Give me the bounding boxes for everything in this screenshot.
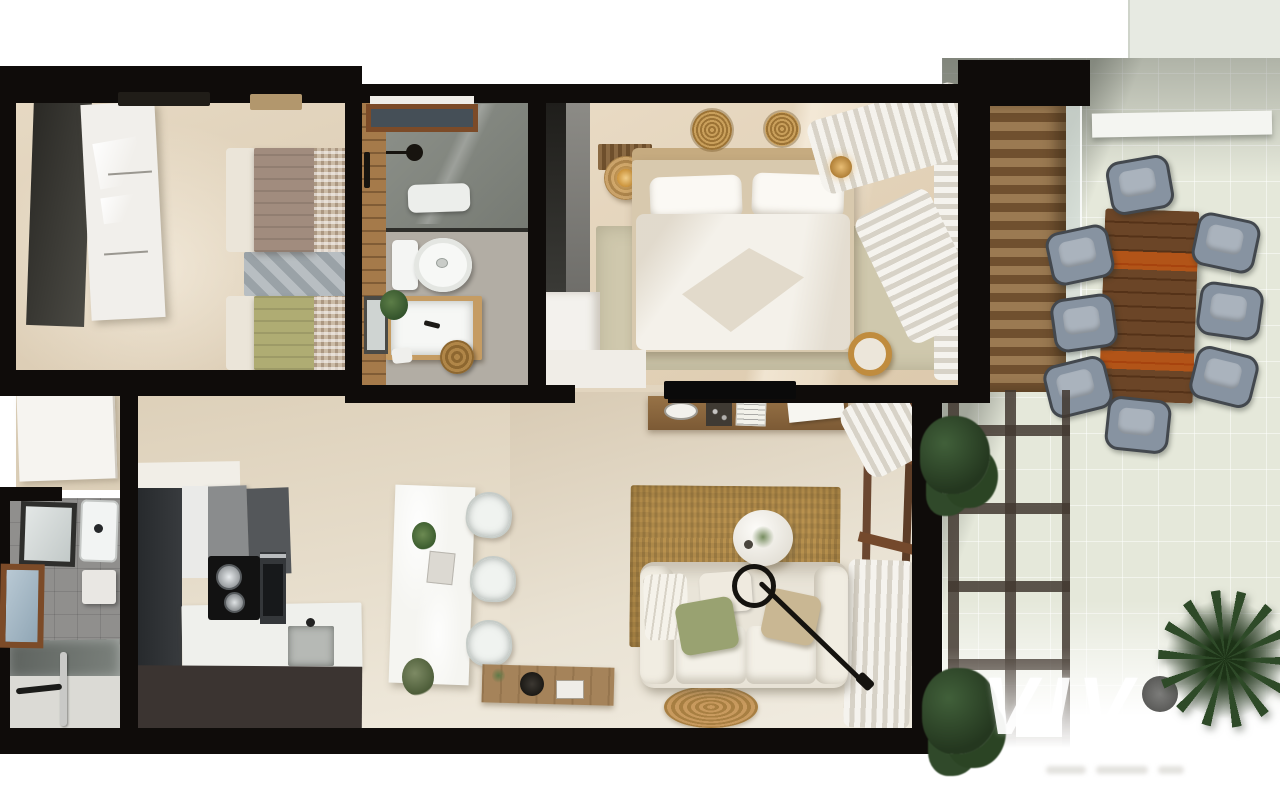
watermark: VIV [982,660,1222,756]
watermark-subtext-blur-1 [1046,766,1086,774]
kitchen-faucet [306,618,315,627]
bathroom2-window [0,564,45,649]
desk-notepad [736,401,767,426]
wall-mid-left [0,370,350,396]
wall-master-terrace [958,60,990,392]
bathroom1-window [366,104,478,132]
ceiling-vent [118,92,210,106]
wall-medallion-1 [692,110,732,150]
outdoor-chair-top [1104,153,1176,217]
wall-shelf [250,94,302,110]
table-tray [426,551,455,586]
wall-bottom [0,728,950,754]
kitchen-front-panel [136,665,362,731]
toilet-flush-button [436,258,448,268]
bedroom2-gray-rug [244,252,346,296]
master-dresser-return [546,350,646,388]
wardrobe-reflection [92,137,143,190]
master-pouf [848,332,892,376]
sofa-pillow-green [674,595,740,656]
jute-basket [440,340,474,374]
wall-mid-center [345,385,575,403]
watermark-subtext-blur-3 [1158,766,1184,774]
wall-bathroom1-master [528,84,546,403]
floor-plan-scene: VIV [0,0,1280,800]
bathroom2-wall-cabinet [82,570,116,604]
wall-hall-bathroom2 [120,390,138,730]
kitchen-floor-plant [402,658,434,696]
shower-arm [386,151,410,154]
outdoor-chair-bottom [1103,395,1172,455]
living-curtain-right [843,559,915,729]
wall-medallion-2 [765,112,799,146]
table-plant [412,522,436,550]
outdoor-chair-right-2 [1195,280,1266,342]
master-wardrobe-gray [566,103,590,293]
console-speaker [520,672,544,696]
arc-lamp-ring [732,564,776,608]
neighbor-roof-panel [1128,0,1280,64]
wardrobe-reflection-2 [100,194,137,224]
wall-left-upper [0,66,16,396]
pendant-lamp [830,156,852,178]
towel-rail [364,152,370,188]
bathroom2-faucet [94,524,103,533]
desk-photo-frames [706,402,732,426]
kitchen-tall-white-unit [182,486,208,578]
shower-tray [408,183,471,213]
bath-towel [391,347,412,364]
coffee-table-bowl [744,540,753,549]
desk-lamp [664,402,698,420]
coffee-table-plant [752,526,774,548]
bed2-quilt [254,296,316,370]
pot-small [224,592,245,613]
oven-handle [260,554,286,558]
kitchen-sink [288,626,334,666]
console-plant [492,668,505,683]
bathroom2-mirror-glass [24,506,72,562]
outdoor-chair-left-2 [1049,292,1120,354]
wall-tv [664,381,796,399]
vanity-plant [380,290,408,320]
oven-glass [263,564,283,616]
watermark-text: VIV [982,661,1141,752]
master-wardrobe-dark [546,103,566,293]
dining-chair-2 [469,555,517,603]
dining-table [389,485,476,686]
shower-partition [386,228,528,232]
entrance-door [17,392,118,481]
bed2-sheet-fold [226,296,256,370]
wall-terrace-cap [988,60,1090,106]
round-jute-rug [664,686,758,728]
bed1-quilt [254,148,316,252]
wall-bedroom2-bathroom1 [345,66,362,396]
console-tray [556,680,584,699]
pot-large [216,564,242,590]
watermark-subtext-blur-2 [1096,766,1148,774]
parapet-ledge [1092,110,1272,137]
bed1-sheet-fold [226,148,256,252]
